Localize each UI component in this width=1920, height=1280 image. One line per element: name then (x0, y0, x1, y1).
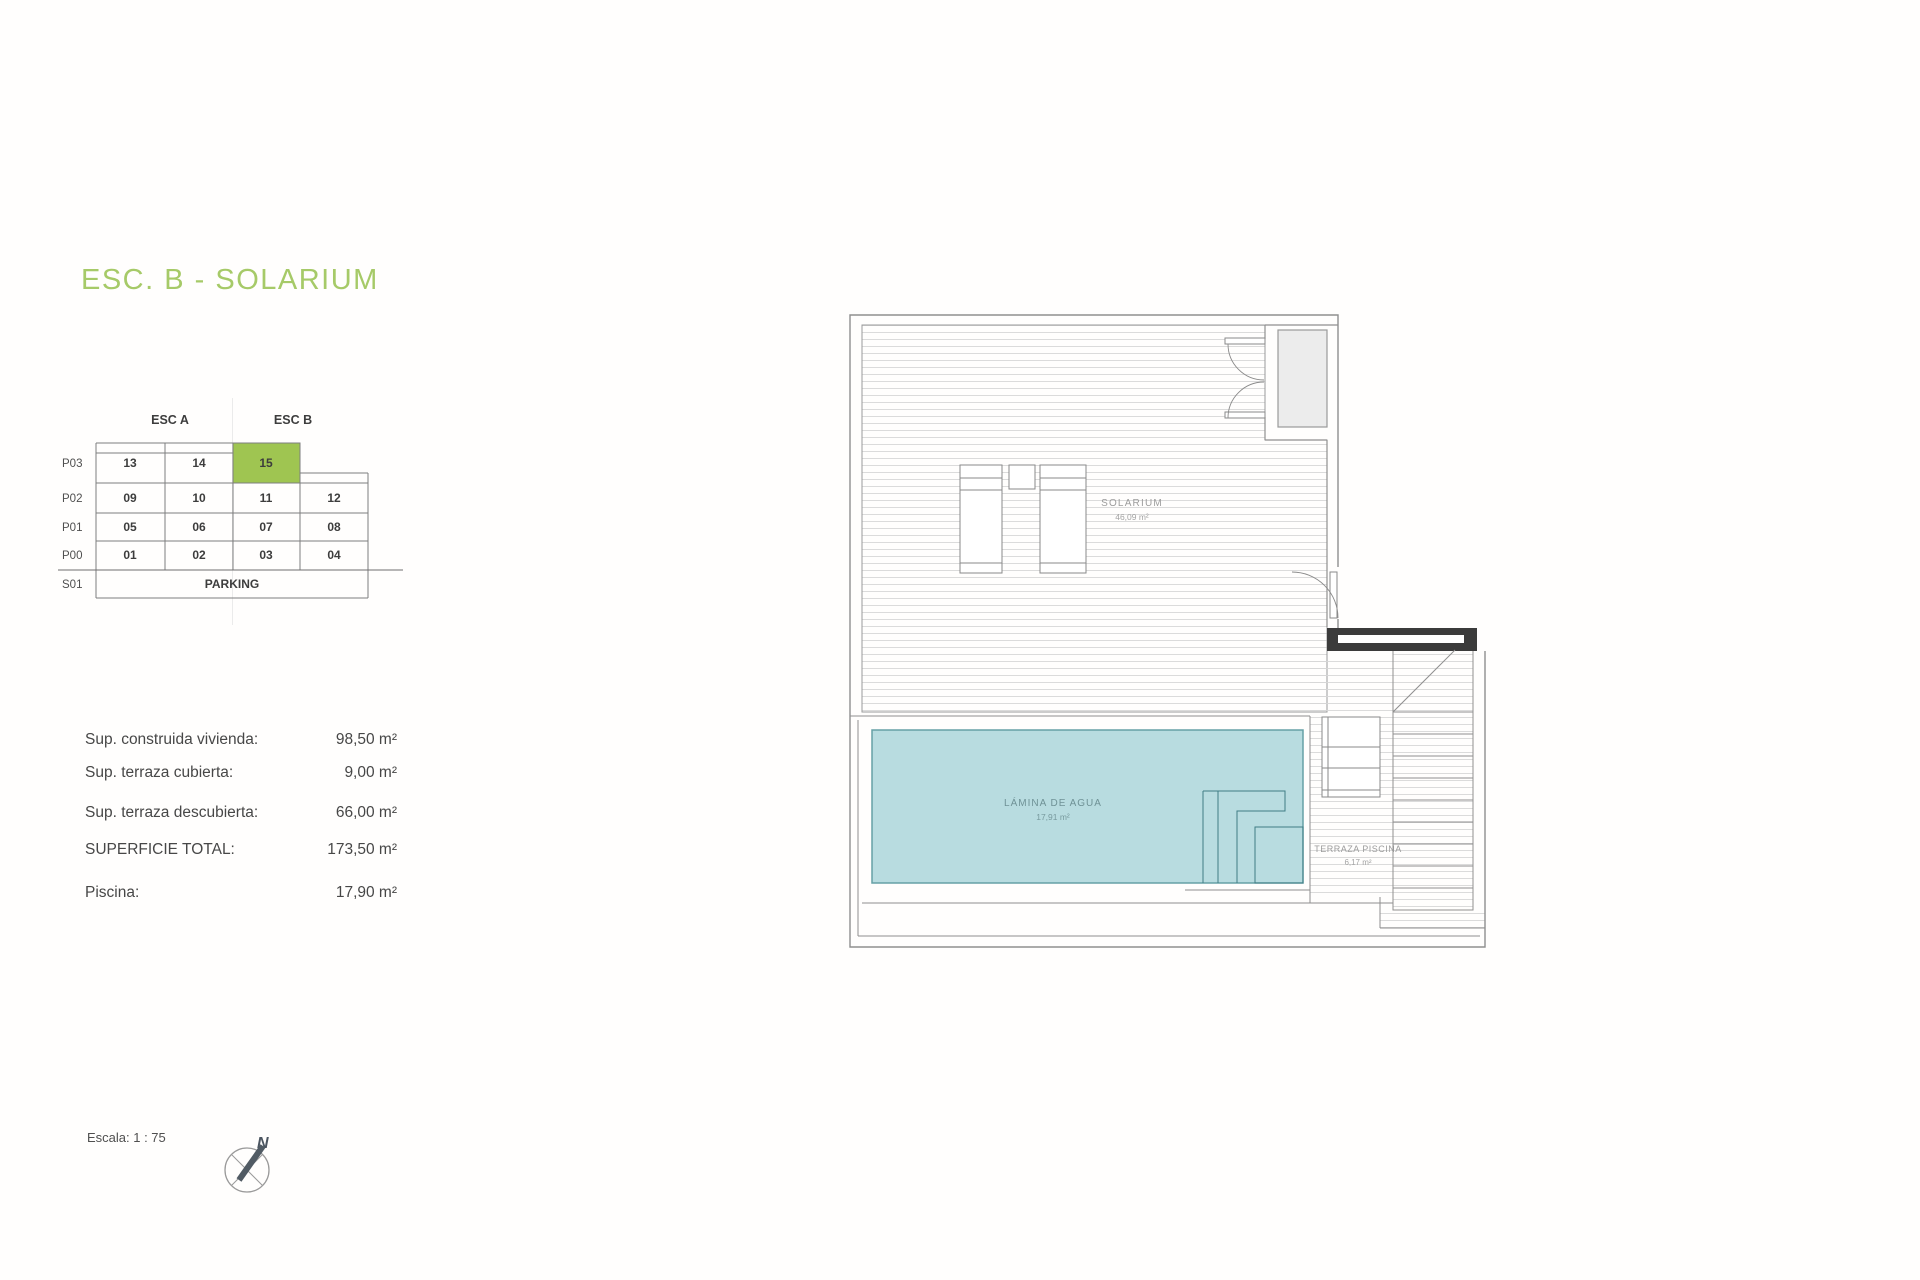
row-label-p03: P03 (62, 458, 82, 470)
solarium-area: 46,09 m² (1115, 512, 1149, 522)
pool-area: 17,91 m² (1036, 812, 1070, 822)
compass-icon: N (215, 1118, 290, 1228)
pool-terrace-area: 6,17 m² (1344, 858, 1371, 867)
unit-12: 12 (327, 491, 341, 505)
area-label: Piscina: (85, 884, 139, 902)
area-label: Sup. terraza descubierta: (85, 804, 258, 822)
unit-10: 10 (192, 491, 206, 505)
area-label: Sup. terraza cubierta: (85, 764, 233, 782)
stair-bulkhead (1278, 330, 1327, 427)
sun-lounger-left (960, 465, 1002, 573)
area-row-superficie-total: SUPERFICIE TOTAL: 173,50 m² (85, 841, 397, 859)
staircase-landing-strip (1380, 910, 1485, 928)
unit-06: 06 (192, 520, 206, 534)
pool-label: LÁMINA DE AGUA (1004, 796, 1102, 809)
unit-09: 09 (123, 491, 137, 505)
unit-05: 05 (123, 520, 137, 534)
unit-13: 13 (123, 456, 137, 470)
compass-needle (239, 1146, 263, 1180)
floorplan-drawing: SOLARIUM 46,09 m² LÁMINA DE AGUA 17,91 m… (840, 300, 1500, 960)
unit-14: 14 (192, 456, 206, 470)
unit-11: 11 (260, 491, 273, 505)
section-wall-core (1338, 635, 1464, 643)
page-title: ESC. B - SOLARIUM (81, 264, 379, 297)
row-label-s01: S01 (62, 579, 82, 591)
area-row-terraza-cubierta: Sup. terraza cubierta: 9,00 m² (85, 764, 397, 782)
exterior-staircase (1393, 648, 1473, 910)
row-label-p01: P01 (62, 522, 82, 534)
area-value: 66,00 m² (336, 804, 397, 822)
area-label: SUPERFICIE TOTAL: (85, 841, 235, 859)
unit-08: 08 (327, 520, 341, 534)
sun-lounger-right (1040, 465, 1086, 573)
area-row-construida: Sup. construida vivienda: 98,50 m² (85, 731, 397, 749)
row-label-p00: P00 (62, 550, 82, 562)
solarium-label: SOLARIUM (1101, 498, 1163, 509)
unit-03: 03 (259, 548, 273, 562)
solarium-deck (862, 325, 1327, 712)
area-value: 17,90 m² (336, 884, 397, 902)
unit-04: 04 (327, 548, 341, 562)
area-row-piscina: Piscina: 17,90 m² (85, 884, 397, 902)
unit-07: 07 (259, 520, 273, 534)
area-label: Sup. construida vivienda: (85, 731, 258, 749)
area-value: 98,50 m² (336, 731, 397, 749)
side-table (1009, 465, 1035, 489)
area-row-terraza-descubierta: Sup. terraza descubierta: 66,00 m² (85, 804, 397, 822)
header-esc-a: ESC A (151, 413, 189, 427)
pool-terrace-label: TERRAZA PISCINA (1314, 844, 1402, 854)
terrace-steps (1322, 717, 1380, 797)
unit-01: 01 (123, 548, 137, 562)
unit-key-table: ESC A ESC B P03 P02 P01 P00 S01 13 14 15… (40, 390, 420, 630)
unit-02: 02 (192, 548, 206, 562)
plan-sheet: ESC. B - SOLARIUM ESC A ESC B (0, 0, 1920, 1280)
scale-note: Escala: 1 : 75 (87, 1130, 166, 1145)
area-value: 173,50 m² (327, 841, 397, 859)
parking-cell: PARKING (205, 577, 259, 591)
row-label-p02: P02 (62, 493, 82, 505)
area-value: 9,00 m² (344, 764, 397, 782)
header-esc-b: ESC B (274, 413, 312, 427)
unit-15-highlighted: 15 (259, 456, 273, 470)
